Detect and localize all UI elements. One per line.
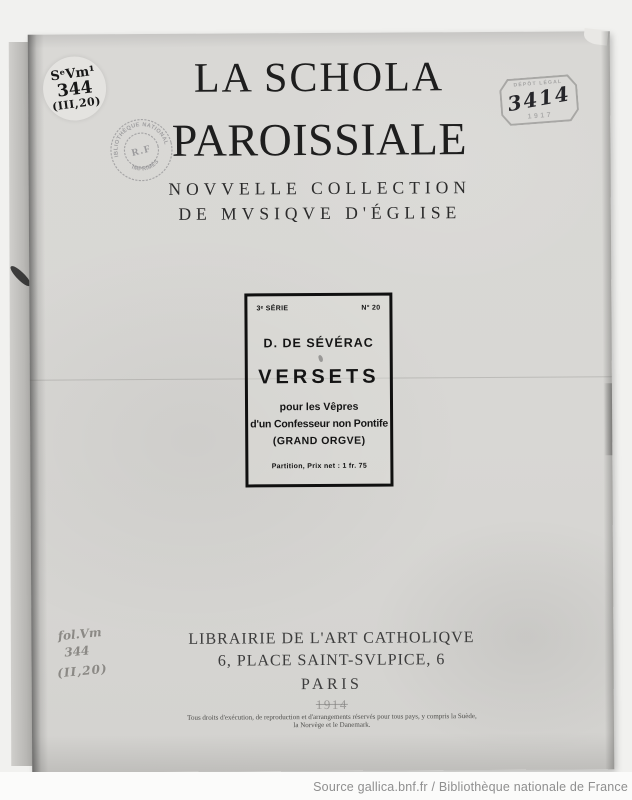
pencil-shelfmark-note: fol.Vm 344 (II,20)	[45, 626, 108, 681]
source-credit-bar: Source gallica.bnf.fr / Bibliothèque nat…	[0, 772, 632, 800]
source-credit-text: Source gallica.bnf.fr / Bibliothèque nat…	[313, 780, 628, 794]
work-box-header: 3ᵉ SÉRIE N° 20	[256, 305, 380, 314]
price-line: Partition, Prix net : 1 fr. 75	[248, 463, 390, 472]
series-label: 3ᵉ SÉRIE	[256, 305, 288, 313]
ink-smudge	[318, 355, 324, 363]
collection-subtitle-line1: NOVVELLE COLLECTION	[29, 178, 611, 199]
pencil-note-line2: 344	[64, 643, 107, 660]
work-subtitle-line2: d'un Confesseur non Pontife	[248, 419, 390, 431]
scanned-document-view: SᵉVm¹ 344 (III,20) BIBLIOTHÈQUE NATIONAL…	[0, 0, 632, 800]
publisher-block: LIBRAIRIE DE L'ART CATHOLIQVE 6, PLACE S…	[37, 31, 619, 35]
composer-name: D. DE SÉVÉRAC	[248, 337, 390, 351]
pencil-note-line1: fol.Vm	[57, 626, 104, 643]
work-info-box: 3ᵉ SÉRIE N° 20 D. DE SÉVÉRAC VERSETS pou…	[244, 293, 393, 488]
number-label: N° 20	[361, 305, 380, 313]
right-edge-smudge	[604, 383, 612, 455]
work-subtitle-line1: pour les Vêpres	[248, 402, 390, 414]
publication-year: 1914	[41, 696, 623, 713]
corner-tear	[583, 28, 609, 46]
collection-subtitle-line2: DE MVSIQVE D'ÉGLISE	[29, 203, 611, 224]
work-instrument: (GRAND ORGVE)	[248, 436, 390, 448]
score-cover-page: SᵉVm¹ 344 (III,20) BIBLIOTHÈQUE NATIONAL…	[28, 31, 614, 773]
collection-title-line2: PAROISSIALE	[28, 115, 610, 165]
collection-title-line1: LA SCHOLA	[28, 55, 610, 101]
work-title: VERSETS	[248, 367, 390, 389]
publisher-name: LIBRAIRIE DE L'ART CATHOLIQVE	[40, 629, 622, 649]
publisher-city: PARIS	[41, 675, 623, 695]
publisher-address: 6, PLACE SAINT-SVLPICE, 6	[41, 651, 623, 671]
